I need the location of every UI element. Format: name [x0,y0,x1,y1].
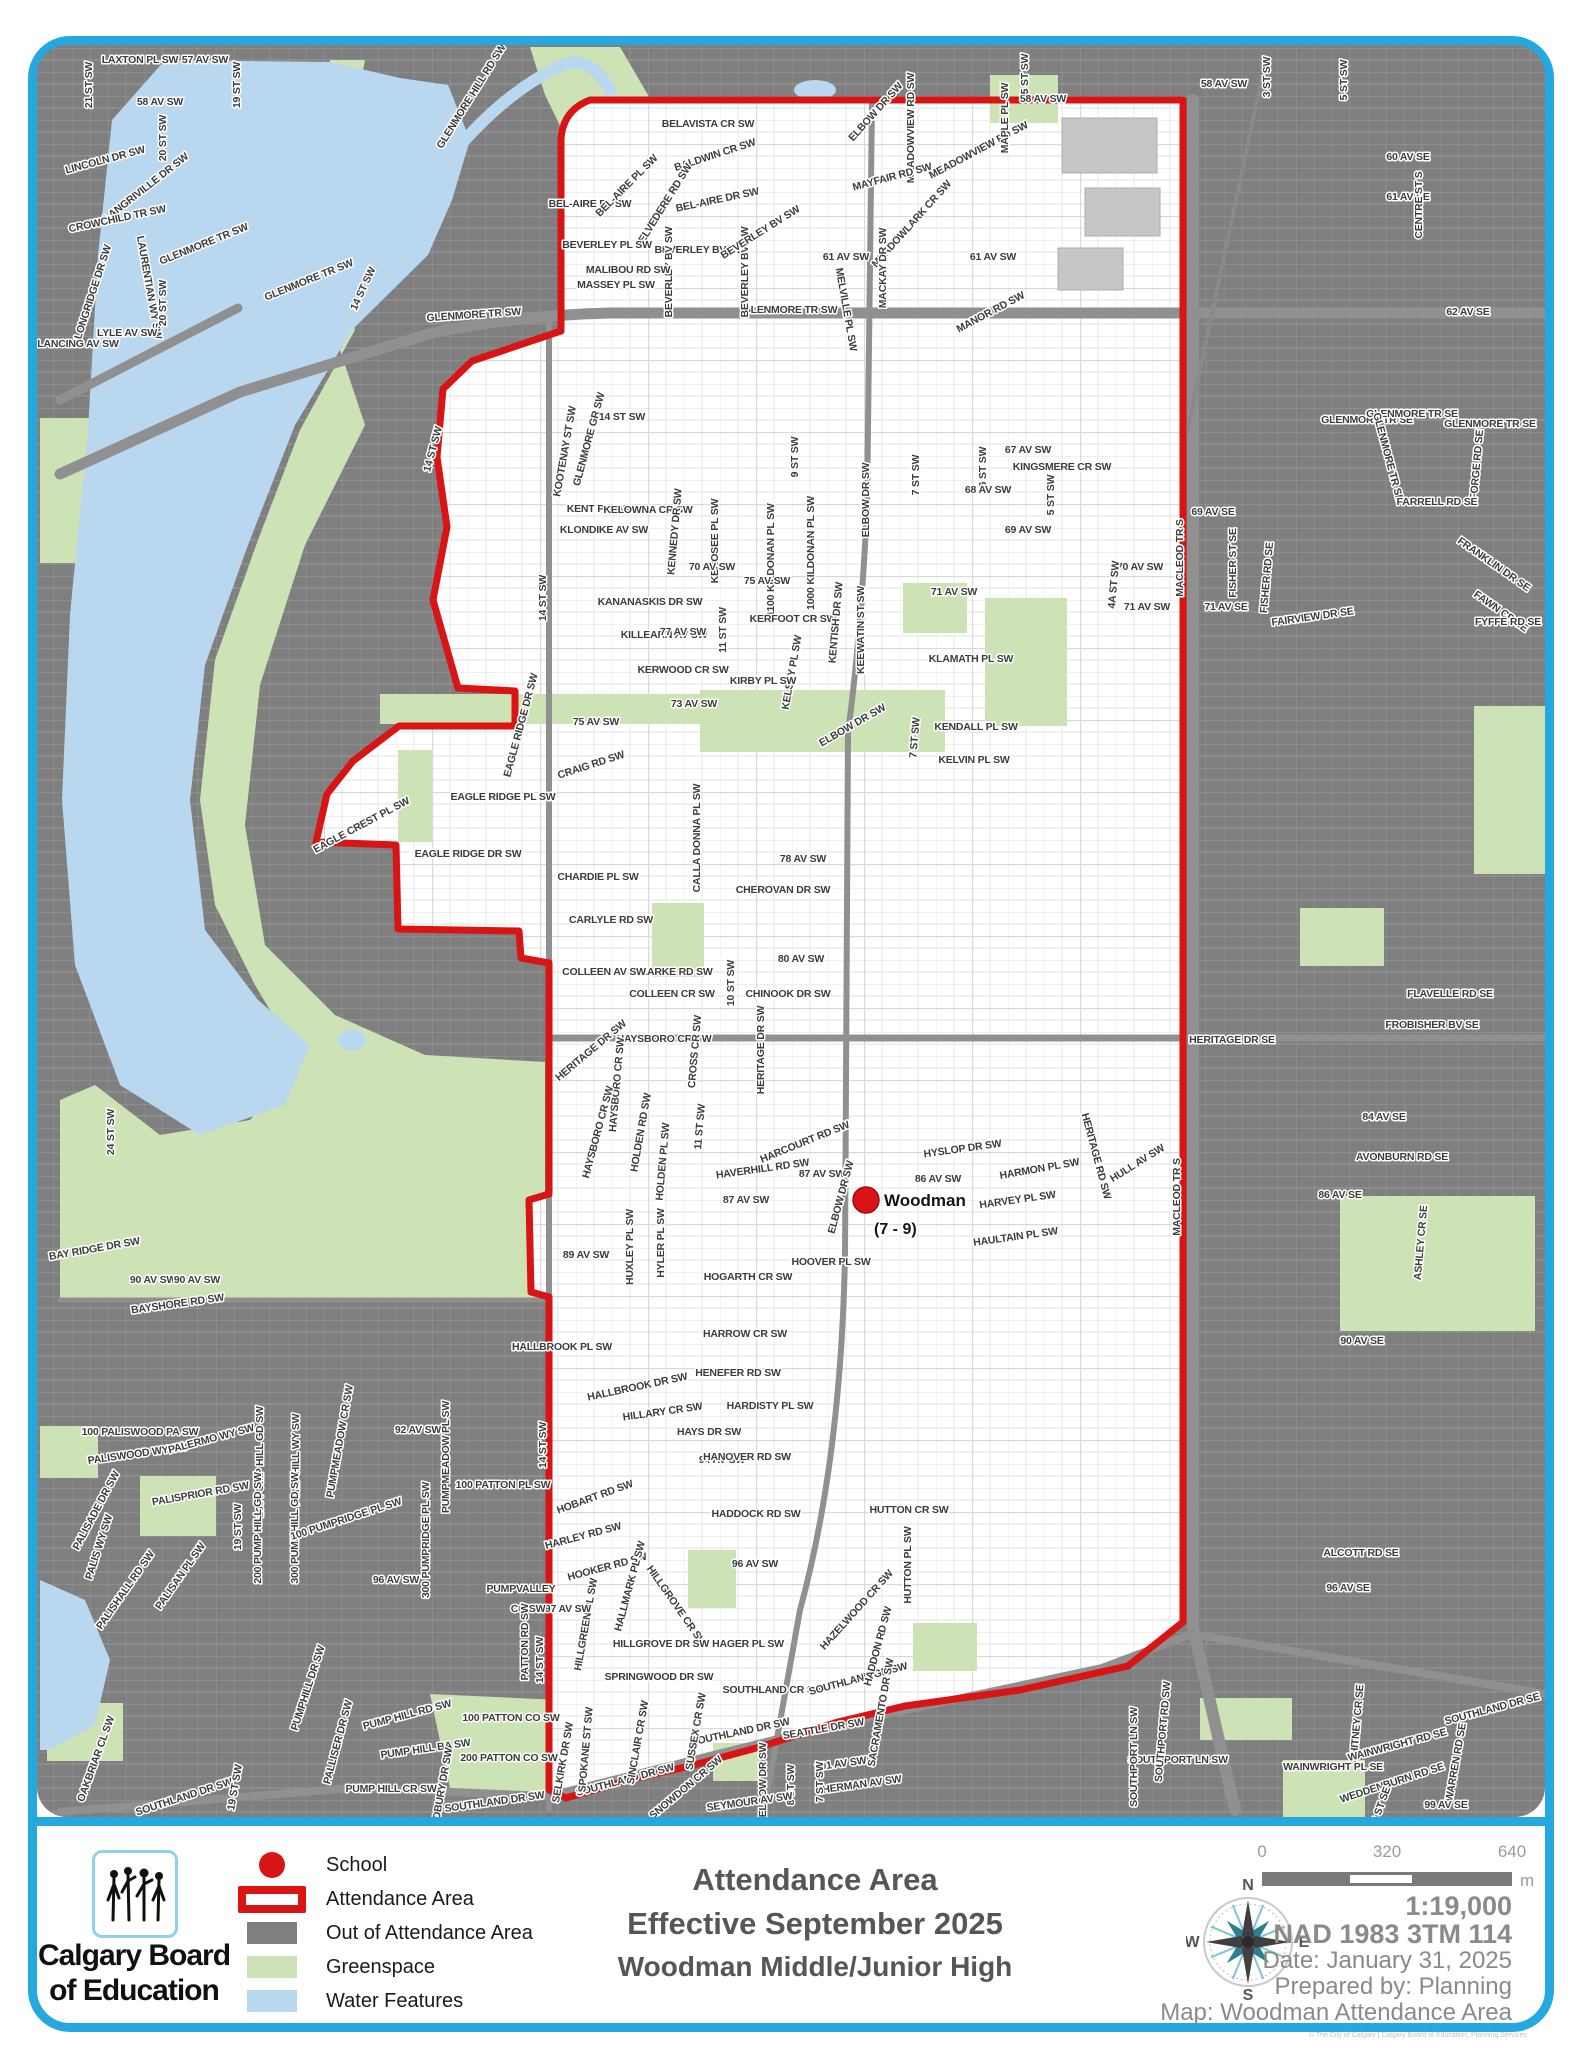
map-prepared-by: Prepared by: Planning [1160,1974,1512,2000]
street-label: ALCOTT RD SE [1323,1547,1398,1559]
title-line1: Attendance Area [515,1858,1115,1902]
street-label: 92 AV SW [395,1424,442,1436]
street-label: 200 PATTON CO SW [460,1752,557,1764]
street-label: KELVIN PL SW [938,754,1010,766]
title-line2: Effective September 2025 [515,1902,1115,1946]
legend-row-attendance: Attendance Area [232,1882,533,1916]
school-dot [853,1187,879,1213]
street-label: 68 AV SW [965,484,1012,496]
street-label: MACLEOD TR S [1174,519,1186,597]
street-label: 1100 KILDONAN PL SW [765,503,777,617]
street-label: SPRINGWOOD DR SW [605,1671,714,1683]
street-label: FLAVELLE RD SE [1407,988,1493,1000]
street-label: BELAVISTA CR SW [662,118,755,130]
street-label: 71 AV SW [931,586,978,598]
street-label: 70 AV SW [1117,561,1164,573]
street-label: 69 AV SE [1191,506,1235,518]
street-label: FARRELL RD SE [1397,496,1478,508]
map-date: Date: January 31, 2025 [1160,1948,1512,1974]
street-label: 21 ST SW [83,62,95,109]
street-label: HARDISTY PL SW [727,1400,814,1412]
map-name: Map: Woodman Attendance Area [1160,2000,1512,2026]
street-label: 70 AV SW [689,561,736,573]
street-label: MACLEOD TR S [1171,1158,1183,1236]
street-label: HUXLEY PL SW [624,1209,636,1285]
street-label: 71 AV SE [1204,601,1248,613]
street-label: 5 ST SW [1338,59,1350,100]
street-label: MASSEY PL SW [577,279,655,291]
street-label: KLONDIKE AV SW [560,524,648,536]
street-label: 20 ST SW [157,115,169,162]
street-label: COLLEEN AV SW [562,966,646,978]
street-label: 61 AV SW [823,251,870,263]
cbe-logo-line1: Calgary Board [26,1938,242,1973]
street-label: 96 AV SW [373,1574,420,1586]
street-label: ELBOW DR SW [860,462,872,537]
cbe-logo-line2: of Education [26,1973,242,2008]
street-label: SOUTHPORT LN SW [1128,1754,1228,1766]
street-label: PATTON RD SW [519,1603,531,1680]
street-label: 100 PALISWOOD PA SW [82,1426,199,1438]
legend-swatch-attendance [238,1886,306,1913]
street-label: 96 AV SE [1326,1582,1370,1594]
street-label: 19 ST SW [231,62,243,109]
street-label: GLENMORE TR SE [1444,418,1536,430]
street-label: 87 AV SW [799,1168,846,1180]
street-label: 1000 KILDONAN PL SW [805,496,817,610]
street-label: 75 AV SW [573,716,620,728]
street-label: 90 AV SE [1340,1335,1384,1347]
street-label: HARROW CR SW [703,1328,787,1340]
street-label: HUTTON PL SW [902,1526,914,1603]
street-label: AVONBURN RD SE [1356,1151,1448,1163]
legend-row-green: Greenspace [232,1950,533,1984]
scale-bar-segment [1350,1875,1412,1883]
legend-label: Water Features [312,1990,463,2013]
cbe-logo-text: Calgary Board of Education [26,1938,242,2008]
street-label: HUTTON CR SW [869,1504,948,1516]
street-label: HANOVER RD SW [703,1451,791,1463]
legend-swatch-green [247,1956,297,1978]
map-footer-divider [37,1817,1545,1826]
street-label: KENDALL PL SW [934,721,1018,733]
street-label: 57 AV SW [182,54,229,66]
street-label: HALLBROOK PL SW [512,1341,612,1353]
map-scale: 1:19,000 [1160,1892,1512,1920]
street-label: 7 ST SW [910,454,922,495]
street-label: 84 AV SE [1362,1111,1406,1123]
street-label: 90 AV SW [174,1274,221,1286]
street-label: HOOVER PL SW [791,1256,870,1268]
street-label: PUMP HILL CR SW [345,1783,436,1795]
street-label: 62 AV SE [1446,306,1490,318]
street-label: 61 AV SW [970,251,1017,263]
street-label: HADDOCK RD SW [712,1508,801,1520]
street-label: 58 AV SW [137,96,184,108]
street-label: 78 AV SW [780,853,827,865]
legend: SchoolAttendance AreaOut of Attendance A… [232,1848,533,2018]
cbe-logo [92,1850,178,1938]
scale-unit: m [1520,1871,1534,1891]
street-label: 14 ST SW [534,1637,546,1684]
street-label: 73 AV SW [671,698,718,710]
scale-tick-320: 320 [1373,1842,1401,1862]
street-label: HILLGROVE DR SW [613,1638,709,1650]
street-label: CHEROVAN DR SW [736,884,831,896]
street-label: HENEFER RD SW [695,1367,781,1379]
street-label: HYLER PL SW [655,1208,667,1278]
street-label: 86 AV SW [915,1173,962,1185]
street-label: LAXTON PL SW [102,54,179,66]
street-label: 99 AV SE [1424,1799,1468,1811]
map-canvas: Woodman (7 - 9) LAXTON PL SW57 AV SW21 S… [37,45,1545,1817]
street-label: 10 ST SW [725,960,737,1007]
street-label: 71 AV SW [1124,601,1171,613]
street-label: 24 ST SW [105,1109,117,1156]
street-label: KERFOOT CR SW [750,613,837,625]
street-label: 96 AV SW [732,1558,779,1570]
street-label: 6 ST SW [977,446,989,487]
street-label: HAYS DR SW [677,1426,741,1438]
street-label: 97 AV SW [545,1603,592,1615]
street-label: 5 ST SW [1045,474,1057,515]
legend-label: Attendance Area [312,1888,474,1911]
street-label: SOUTHPORT LN SW [1128,1707,1140,1807]
street-label: KIRBY PL SW [730,675,797,687]
street-label: 77 AV SW [660,626,707,638]
street-label: HAGER PL SW [712,1638,784,1650]
legend-label: Greenspace [312,1956,435,1979]
scale-ticks: 0 320 640 [0,1842,1582,1862]
street-label: KERWOOD CR SW [637,664,728,676]
street-label: 80 AV SW [778,953,825,965]
legend-row-out: Out of Attendance Area [232,1916,533,1950]
street-label: KEEWATIN ST SW [855,586,867,674]
street-label: MALIBOU RD SW [586,264,671,276]
street-label: KINGSMERE CR SW [1013,461,1112,473]
street-label: 75 AV SW [744,575,791,587]
street-label: CALLA DONNA PL SW [691,783,703,892]
street-label: 20 ST SW [157,280,169,327]
scale-tick-0: 0 [1257,1842,1266,1862]
cbe-people-icon [102,1862,168,1926]
street-label: WAINWRIGHT PL SE [1283,1761,1383,1773]
street-label: 100 PATTON PL SW [456,1479,551,1491]
street-label: PUMPMEADOW PL SW [440,1401,452,1513]
street-label: KANANASKIS DR SW [598,596,703,608]
fine-print: © The City of Calgary | Calgary Board of… [1047,2032,1527,2039]
street-label: 58 AV SW [1201,78,1248,90]
street-label: GLENMORE TR SW [743,304,838,316]
street-label: 9 ST SW [789,436,801,477]
street-label: 100 PATTON CO SW [462,1712,559,1724]
street-label: HOGARTH CR SW [704,1271,793,1283]
street-label: 14 ST SW [537,1422,549,1469]
street-label: BEVERLEY PL SW [562,239,652,251]
school-grades: (7 - 9) [874,1221,917,1238]
street-label: CARLYLE RD SW [569,914,653,926]
street-label: 14 ST SW [537,575,549,622]
street-label: 19 ST SW [232,1504,244,1551]
street-label: 11 ST SW [717,607,729,653]
street-label: CHARDIE PL SW [557,871,638,883]
street-label: 7 ST SW [814,1761,826,1802]
street-label: CENTRE ST S [1413,171,1425,238]
street-label: HERITAGE DR SW [755,1005,767,1094]
street-label: 14 ST SW [599,411,646,423]
street-label: 69 AV SW [1005,524,1052,536]
street-label: HERITAGE DR SE [1189,1034,1275,1046]
legend-row-water: Water Features [232,1984,533,2018]
street-label: FROBISHER BV SE [1385,1019,1478,1031]
street-label: MACKAY DR SW [877,227,889,308]
map-info-block: 1:19,000 NAD 1983 3TM 114 Date: January … [1160,1892,1512,2026]
street-label: PUMPVALLEY [487,1583,556,1595]
street-label: FYFFE RD SE [1475,616,1541,628]
street-label: 300 PUMPRIDGE PL SW [420,1482,432,1598]
street-label: LANCING AV SW [37,338,119,350]
title-line3: Woodman Middle/Junior High [515,1946,1115,1988]
street-label: 87 AV SW [723,1194,770,1206]
street-label: 89 AV SW [563,1249,610,1261]
scale-tick-640: 640 [1498,1842,1526,1862]
street-label: EAGLE RIDGE PL SW [451,791,556,803]
map-area: Woodman (7 - 9) LAXTON PL SW57 AV SW21 S… [37,45,1545,1817]
street-label: COLLEEN CR SW [629,988,715,1000]
street-label: 67 AV SW [1005,444,1052,456]
street-label: 60 AV SE [1386,151,1430,163]
street-label: CHINOOK DR SW [746,988,831,1000]
street-label: 90 AV SW [130,1274,177,1286]
street-label: FISHER ST SE [1227,528,1239,598]
legend-swatch-out [247,1922,297,1944]
street-label: 3 ST SW [1261,56,1273,97]
title-block: Attendance Area Effective September 2025… [515,1858,1115,1988]
street-label: 5 ST SW [1019,53,1031,94]
street-label: KLAMATH PL SW [929,653,1014,665]
street-label: MAPLE PL SW [999,82,1011,153]
legend-label: Out of Attendance Area [312,1922,533,1945]
street-label: 200 PUMP HILL GD SW [252,1472,264,1584]
school-name: Woodman [884,1191,966,1210]
map-datum: NAD 1983 3TM 114 [1160,1920,1512,1948]
street-label: EAGLE RIDGE DR SW [415,848,522,860]
legend-swatch-water [247,1990,297,2012]
street-label: 86 AV SE [1318,1189,1362,1201]
